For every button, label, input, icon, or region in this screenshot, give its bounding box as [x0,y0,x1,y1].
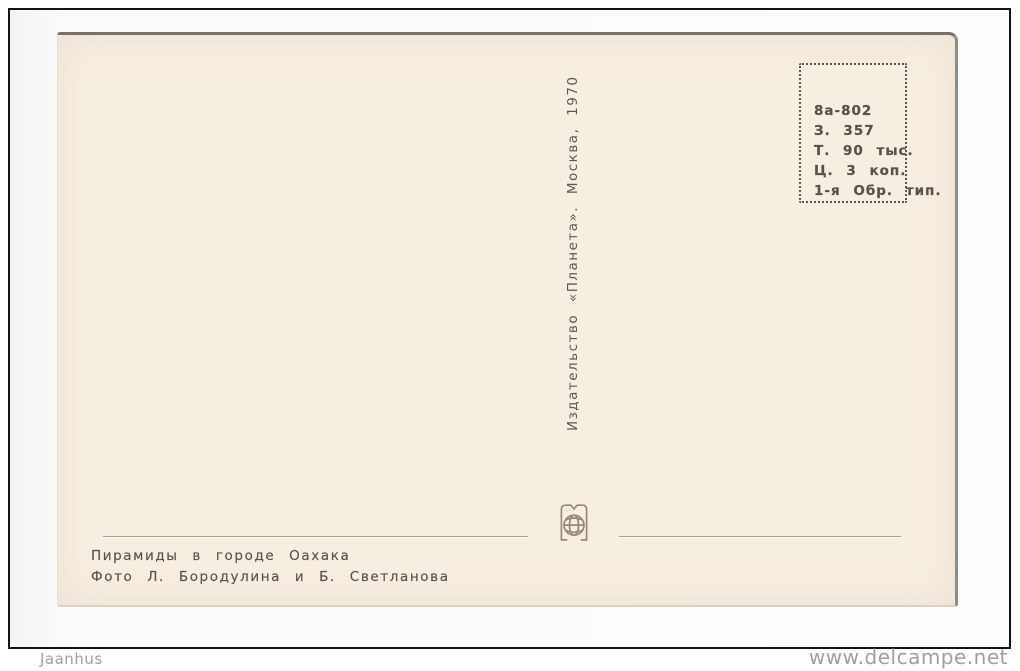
planeta-logo-icon [555,501,593,543]
divider-line-left [103,536,528,537]
print-run-line: Ц. 3 коп. [814,161,905,181]
scan-frame: 8а-802 З. 357 Т. 90 тыс. Ц. 3 коп. 1-я О… [8,8,1011,649]
publisher-imprint-vertical: Издательство «Планета». Москва, 1970 [565,109,587,431]
watermark-delcampe: www.delcampe.net [809,645,1008,669]
print-run-line: 8а-802 [814,101,905,121]
print-run-info-box: 8а-802 З. 357 Т. 90 тыс. Ц. 3 коп. 1-я О… [799,63,907,203]
postcard-scan-page: 8а-802 З. 357 Т. 90 тыс. Ц. 3 коп. 1-я О… [0,0,1020,671]
divider-line-right [619,536,901,537]
watermark-jaanhus: Jaanhus [40,650,103,668]
caption-credit: Фото Л. Бородулина и Б. Светланова [91,567,450,588]
print-run-line: З. 357 [814,121,905,141]
print-run-line: Т. 90 тыс. [814,141,905,161]
caption-title: Пирамиды в городе Оахака [91,546,450,567]
caption-block: Пирамиды в городе Оахака Фото Л. Бородул… [91,546,450,588]
print-run-line: 1-я Обр. тип. [814,181,905,201]
postcard-back: 8а-802 З. 357 Т. 90 тыс. Ц. 3 коп. 1-я О… [57,32,958,607]
